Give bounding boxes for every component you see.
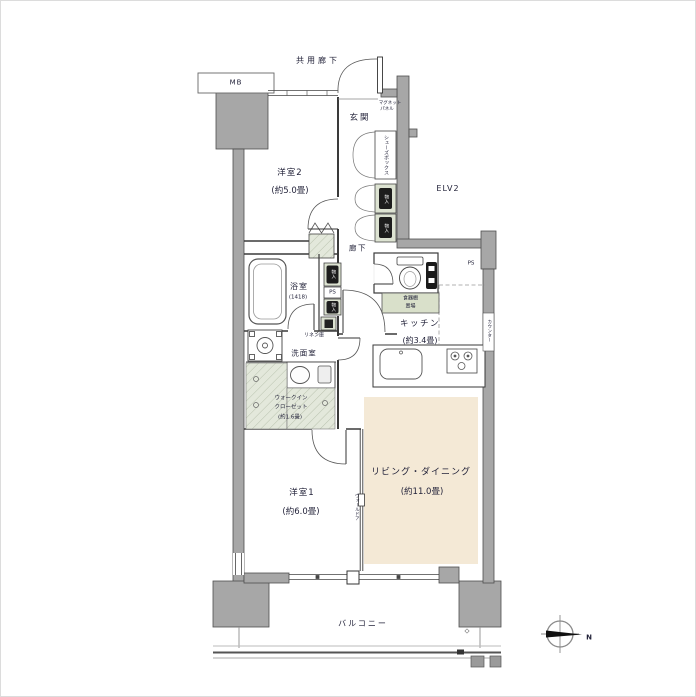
washing-machine	[248, 330, 282, 361]
storage-label-2: 物入	[383, 223, 388, 232]
storage-label-4: 物入	[330, 303, 335, 312]
floor-plan-page: 共用廊下 MB 玄関 マグネット パネル シューズボックス 物入 物入 ELV2…	[0, 0, 696, 697]
bedroom1-label: 洋室1	[289, 489, 314, 498]
bedroom2-closet	[309, 223, 334, 258]
storage-label-1: 物入	[383, 194, 388, 203]
balcony-equipment-2	[490, 656, 501, 667]
cupboard-label-2: 置場	[405, 304, 415, 309]
hallway-label: 廊下	[349, 244, 367, 252]
vanity	[287, 362, 335, 388]
bathroom-label: 浴室	[290, 283, 308, 291]
bedroom1-size: (約6.0畳)	[282, 508, 319, 517]
washroom-door	[338, 338, 360, 360]
entrance-label: 玄関	[349, 114, 370, 123]
bedroom1-door	[312, 430, 346, 464]
linen-closet-label: リネン庫	[304, 333, 324, 338]
shoe-box-label: シューズボックス	[383, 135, 388, 175]
wic-label-2: クローゼット	[274, 405, 307, 411]
pipe-space-label-1: PS	[329, 290, 336, 296]
living-dining-label: リビング・ダイニング	[371, 469, 471, 478]
balcony-label: バルコニー	[338, 620, 388, 628]
wic-size: (約1.6畳)	[278, 415, 302, 421]
bedroom2-door	[308, 199, 338, 229]
entrance-storage	[353, 131, 396, 242]
entrance-door	[338, 57, 383, 99]
floor-plan-drawing	[1, 1, 696, 697]
kitchen-size: (約3.4畳)	[403, 337, 438, 345]
balcony-equipment-1	[471, 656, 484, 667]
wic-label-1: ウォークイン	[274, 396, 307, 402]
magnet-panel-label-1: マグネット	[379, 102, 402, 107]
kitchen-label: キッチン	[400, 320, 440, 329]
storage-label-3: 物入	[330, 270, 335, 279]
meter-box-label: MB	[230, 80, 243, 87]
bedroom2-size: (約5.0畳)	[271, 187, 308, 196]
living-dining-size: (約11.0畳)	[401, 488, 444, 497]
wall-door-label: ウォールドア	[354, 494, 359, 521]
pipe-space-label-2: PS	[468, 261, 475, 267]
bathroom-door	[288, 304, 314, 330]
kitchen-counter	[373, 345, 485, 387]
toilet-room	[374, 253, 438, 293]
dropped-ceiling-line	[439, 285, 485, 345]
kitchen-sink	[380, 349, 422, 379]
balcony-fixture-small	[457, 650, 464, 655]
bathroom-size: (1418)	[289, 295, 307, 301]
balcony-drain	[465, 629, 469, 633]
bedroom2-label: 洋室2	[277, 169, 302, 178]
compass-icon	[541, 615, 582, 653]
washroom-label: 洗面室	[291, 349, 317, 357]
hall-ld-door	[343, 290, 385, 333]
living-dining-floor	[364, 397, 478, 564]
bathtub	[249, 259, 286, 324]
magnet-panel-label-2: パネル	[380, 108, 394, 113]
elevator-label: ELV2	[436, 185, 459, 193]
common-corridor-label: 共用廊下	[296, 57, 340, 65]
compass-north-label: N	[586, 634, 592, 641]
counter-label: カウンター	[486, 320, 491, 343]
cupboard-label-1: 食器棚	[403, 297, 418, 302]
